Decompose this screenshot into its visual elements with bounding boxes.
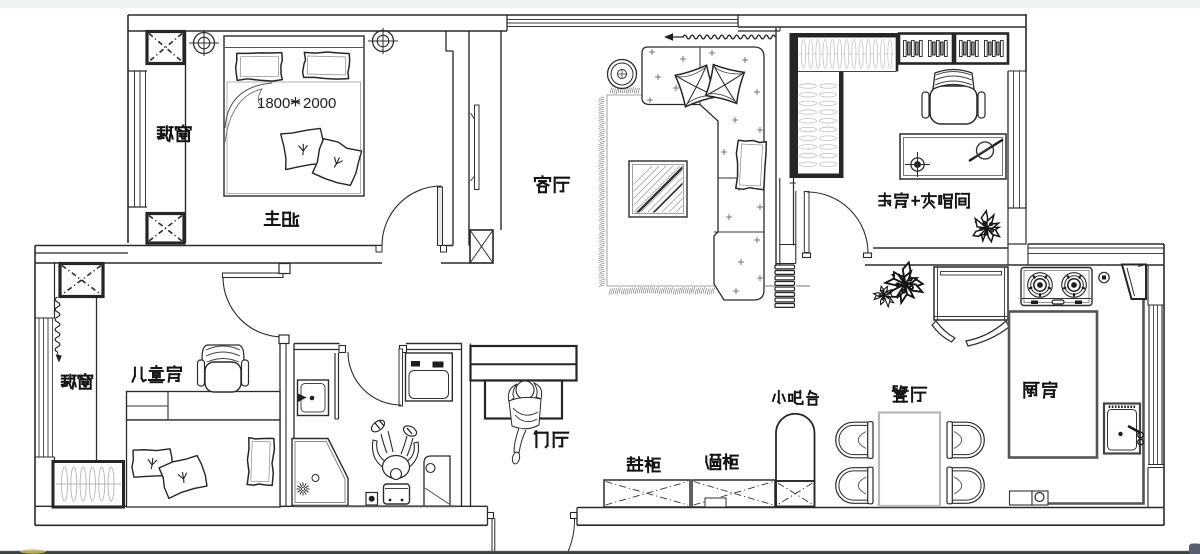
svg-text:1800: 1800 [257, 95, 290, 112]
svg-text:2000: 2000 [303, 95, 336, 112]
